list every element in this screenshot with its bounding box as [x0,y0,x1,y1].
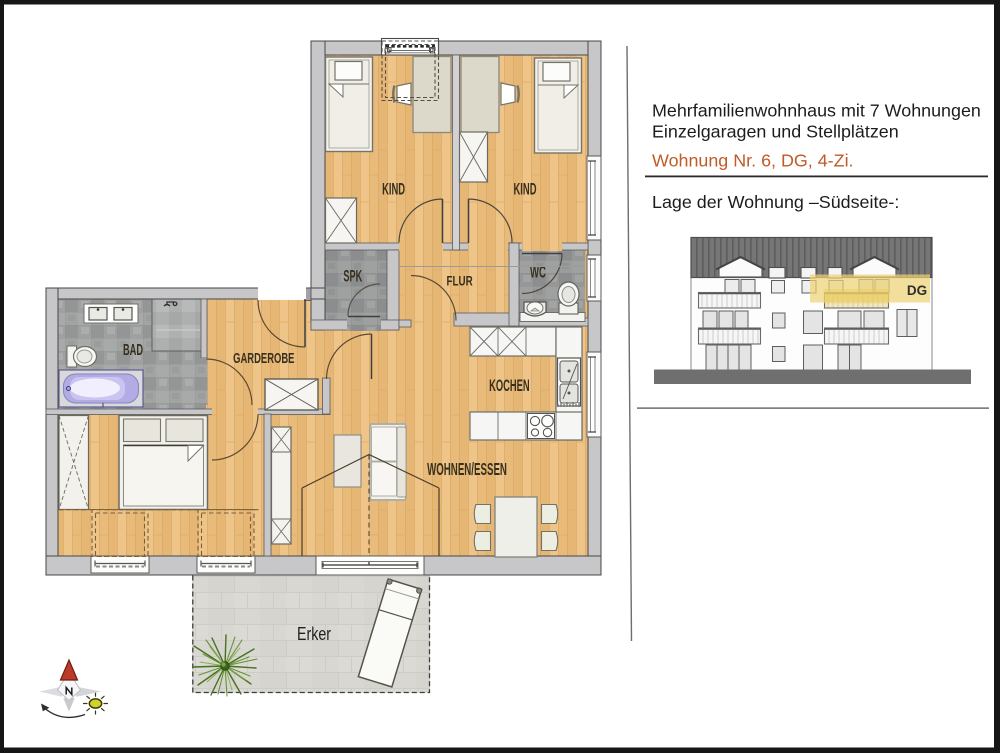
svg-text:BAD: BAD [123,340,143,358]
svg-text:KOCHEN: KOCHEN [489,376,529,395]
svg-text:DG: DG [907,283,927,298]
svg-text:Erker: Erker [297,624,331,644]
svg-text:WC: WC [530,263,546,281]
svg-text:Lage der Wohnung –Südseite-:: Lage der Wohnung –Südseite-: [652,192,899,212]
svg-text:GARDEROBE: GARDEROBE [233,350,294,367]
svg-text:Mehrfamilienwohnhaus mit 7 Woh: Mehrfamilienwohnhaus mit 7 Wohnungen [652,101,981,121]
svg-text:WOHNEN/ESSEN: WOHNEN/ESSEN [427,460,507,480]
svg-text:SPK: SPK [343,267,362,286]
svg-text:KIND: KIND [382,180,405,198]
svg-text:KIND: KIND [514,180,537,198]
svg-text:Wohnung Nr. 6, DG, 4-Zi.: Wohnung Nr. 6, DG, 4-Zi. [652,151,854,171]
svg-text:FLUR: FLUR [447,273,473,289]
svg-text:Einzelgaragen und Stellplätzen: Einzelgaragen und Stellplätzen [652,122,899,142]
